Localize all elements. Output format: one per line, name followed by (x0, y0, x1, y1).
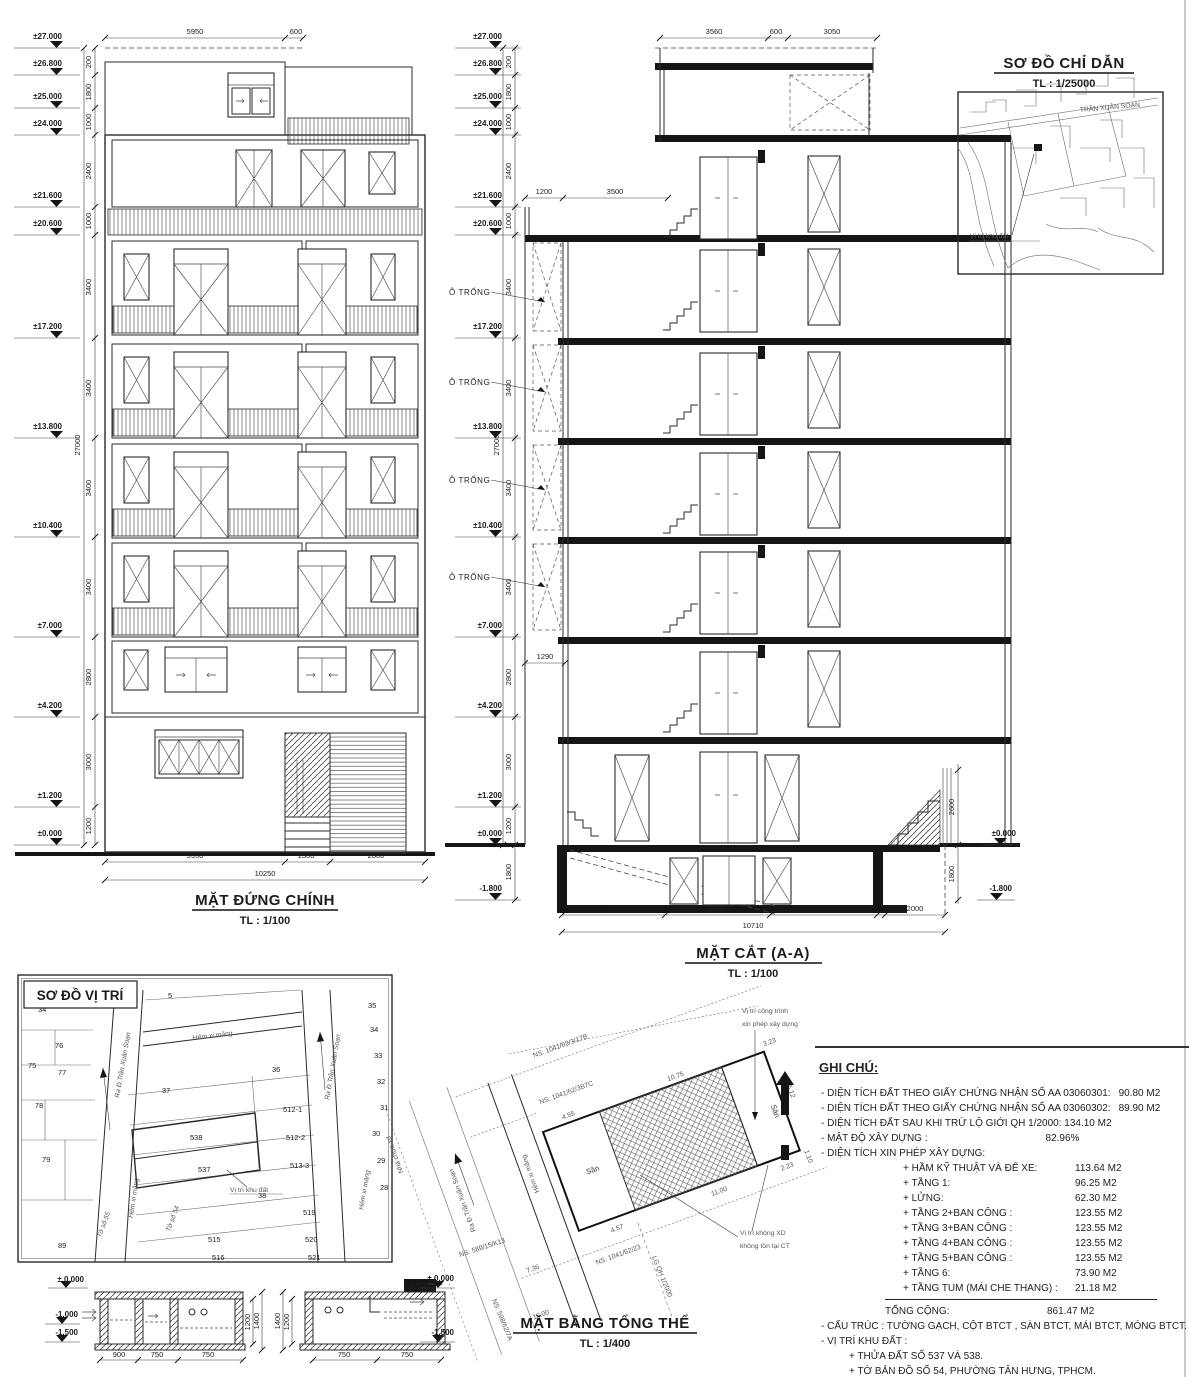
parcel-label: 37 (162, 1086, 170, 1095)
area-row: + TẦNG TUM (MÁI CHE THANG) :21.18 M2 (903, 1281, 1189, 1296)
level-label: ±1.200 (478, 791, 503, 800)
parcel-label: 516 (212, 1253, 225, 1262)
dim-label: 2600 (947, 799, 956, 816)
dim-label: 200 (504, 56, 513, 69)
callout-label: xin phép xây dựng (742, 1021, 798, 1028)
level-label: -1.800 (479, 884, 502, 893)
level-label: ±27.000 (473, 32, 502, 41)
area-value: 123.55 M2 (1075, 1236, 1122, 1251)
area-value: 113.64 M2 (1075, 1161, 1122, 1176)
lg-label: LG QH 1/2000 (650, 1255, 673, 1298)
dim-label: 3400 (84, 279, 93, 296)
area-label: + TẦNG 4+BAN CÔNG : (903, 1236, 1075, 1251)
dim-label: 1000 (504, 213, 513, 230)
dim-label: 11.00 (710, 1186, 728, 1198)
total-label: TỔNG CỘNG: (885, 1304, 1047, 1319)
street-label: Ra Đ.Trần Xuân Soạn (322, 1033, 342, 1100)
dim-label: 3.23 (762, 1037, 777, 1048)
elevation-scale: TL : 1/100 (240, 915, 291, 927)
area-label: + HẦM KỸ THUẬT VÀ ĐỂ XE: (903, 1161, 1075, 1176)
area-row: + HẦM KỸ THUẬT VÀ ĐỂ XE:113.64 M2 (903, 1161, 1189, 1176)
dim-label: 1200 (536, 187, 553, 196)
area-row: + TẦNG 4+BAN CÔNG :123.55 M2 (903, 1236, 1189, 1251)
street-label: Ra Đ.Trần Xuân Soạn (446, 1168, 477, 1234)
septic-details: ± 0.000 -1.000 -1.500 900 750 750 1200 1… (40, 1272, 460, 1377)
level-label: ±4.200 (478, 701, 503, 710)
elevation-ground-floor (105, 717, 425, 853)
parcel-label: 32 (377, 1077, 385, 1086)
area-value: 62.30 M2 (1075, 1191, 1117, 1206)
parcel-label: 36 (272, 1065, 280, 1074)
parcel-label: 513-3 (290, 1161, 309, 1170)
dim-label: 1200 (243, 1314, 252, 1331)
dim-label: 1200 (282, 1314, 291, 1331)
dim-label: 2400 (84, 163, 93, 180)
void-label: Ô TRỐNG (449, 475, 490, 485)
parcel-label: 520 (305, 1235, 318, 1244)
dim-label: 3400 (504, 380, 513, 397)
dim-label: 3400 (84, 579, 93, 596)
ns-label: NS: 1041/62/3/17B (532, 1033, 589, 1059)
parcel-label: 79 (42, 1155, 50, 1164)
parcel-label: 521 (308, 1253, 321, 1262)
dim-label: 750 (338, 1350, 351, 1359)
parcel-label: 77 (58, 1068, 66, 1077)
level-label: ±10.400 (33, 521, 62, 530)
level-label: -1.800 (989, 884, 1012, 893)
dim-label: 1000 (84, 213, 93, 230)
site-plan-title: MẶT BẰNG TỔNG THỂ (520, 1314, 689, 1332)
note-row: - CẤU TRÚC : TƯỜNG GẠCH, CỘT BTCT , SÀN … (815, 1319, 1189, 1334)
location-plan-street-labels: Ra Đ.Trần Xuân Soạn Hẻm xi măng Tờ số 55… (95, 1029, 372, 1239)
area-row: + LỬNG:62.30 M2 (903, 1191, 1189, 1206)
level-label: ±4.200 (38, 701, 63, 710)
level-label: ±13.800 (473, 422, 502, 431)
dim-label: 3500 (607, 187, 624, 196)
note-label: - MẬT ĐỘ XÂY DỰNG : (821, 1133, 928, 1144)
note-row: + TỜ BẢN ĐỒ SỐ 54, PHƯỜNG TÂN HƯNG, TPHC… (815, 1364, 1189, 1377)
total-row: TỔNG CỘNG:861.47 M2 (885, 1299, 1157, 1319)
total-width-label: 10710 (743, 921, 764, 930)
dim-label: 4.55 (561, 1110, 576, 1121)
dim-label: 1290 (537, 652, 554, 661)
index-map-site-label: Vị trí khu đất (970, 231, 1008, 240)
location-plan-roads (21, 990, 345, 1262)
dim-label: 2400 (504, 163, 513, 180)
level-label: ±20.600 (473, 219, 502, 228)
note-row: - MẬT ĐỘ XÂY DỰNG :82.96% (815, 1131, 1189, 1146)
parcel-label: 512-2 (286, 1133, 305, 1142)
dim-label: 1800 (504, 864, 513, 881)
dim-label: 3400 (504, 480, 513, 497)
dim-label: 1800 (947, 866, 956, 883)
area-value: 21.18 M2 (1075, 1281, 1117, 1296)
dim-label: 1500 (298, 851, 315, 860)
section-vertical-dims: 200 1800 1000 2400 1000 3400 3400 3400 3… (492, 45, 518, 903)
level-label: ±1.200 (38, 791, 63, 800)
note-value: 89.90 M2 (1119, 1103, 1161, 1114)
note-label: - DIỆN TÍCH ĐẤT THEO GIẤY CHỨNG NHẬN SỐ … (821, 1103, 1111, 1114)
dim-label: 2800 (84, 669, 93, 686)
area-row: + TẦNG 5+BAN CÔNG :123.55 M2 (903, 1251, 1189, 1266)
dim-label: 1.10 (802, 1149, 813, 1164)
index-map-street-label: TRẦN XUÂN SOẠN (1079, 99, 1140, 114)
elevation-drawing: ±27.000 ±26.800 ±25.000 ±24.000 ±21.600 … (0, 0, 445, 965)
note-label: - DIỆN TÍCH ĐẤT SAU KHI TRỪ LỘ GIỚI QH 1… (821, 1118, 1112, 1129)
parcel-label: 28 (380, 1183, 388, 1192)
dim-label: 1400 (273, 1313, 282, 1330)
yard-label: Sân (585, 1163, 601, 1176)
level-label: ±26.800 (33, 59, 62, 68)
ns-label: NS: 598/62/7A (490, 1298, 513, 1342)
dim-label: 2000 (907, 904, 924, 913)
dim-label: 3650 (815, 904, 832, 913)
drawing-sheet: ±27.000 ±26.800 ±25.000 ±24.000 ±21.600 … (0, 0, 1189, 1377)
section-exterior-stair (888, 768, 951, 915)
note-value: 90.80 M2 (1119, 1088, 1161, 1099)
parcel-label: 31 (380, 1103, 388, 1112)
notes-title: GHI CHÚ: (819, 1058, 1189, 1078)
level-label: ±24.000 (33, 119, 62, 128)
level-label: ±7.000 (478, 621, 503, 630)
void-label: Ô TRỐNG (449, 377, 490, 387)
alley-label: Hẻm xi măng (357, 1169, 372, 1210)
note-row: + THỬA ĐẤT SỐ 537 VÀ 538. (815, 1349, 1189, 1364)
dim-label: 750 (202, 1350, 215, 1359)
dim-label: 4.57 (610, 1223, 625, 1234)
overall-site-plan: NS: 1041/62/3/17B NS: 1041/62/3B7C NS: 1… (400, 995, 810, 1355)
dim-label: 1400 (252, 1313, 261, 1330)
dim-label: 1800 (84, 84, 93, 101)
parcel-label: 537 (198, 1165, 211, 1174)
area-value: 123.55 M2 (1075, 1251, 1122, 1266)
dim-label: 600 (770, 27, 783, 36)
section-title: MẶT CẮT (A-A) (696, 944, 810, 962)
parcel-label: 512-1 (283, 1105, 302, 1114)
total-height-label: 27000 (73, 435, 82, 456)
dim-label: 750 (151, 1350, 164, 1359)
ns-label: NS: 1041/62/3B7C (539, 1080, 595, 1106)
septic-detail-right: ± 0.000 -1.500 1400 1200 750 750 (273, 1274, 455, 1363)
parcel-label: 30 (372, 1129, 380, 1138)
callout-label: Vị trí công trình (742, 1008, 788, 1015)
notes-panel: GHI CHÚ: - DIỆN TÍCH ĐẤT THEO GIẤY CHỨNG… (815, 1046, 1189, 1377)
area-label: + LỬNG: (903, 1191, 1075, 1206)
note-row: - DIỆN TÍCH ĐẤT THEO GIẤY CHỨNG NHẬN SỐ … (815, 1101, 1189, 1116)
level-label: -1.500 (431, 1328, 454, 1337)
dim-label: 3050 (824, 27, 841, 36)
parcel-label: 5 (168, 991, 172, 1000)
index-map-title: SƠ ĐỒ CHỈ DẪN (1003, 54, 1124, 72)
elevation-mezzanine (112, 641, 418, 713)
level-label: ±27.000 (33, 32, 62, 41)
note-row: - VỊ TRÍ KHU ĐẤT : (815, 1334, 1189, 1349)
dim-label: 600 (290, 27, 303, 36)
dim-label: 1200 (84, 818, 93, 835)
ns-label: NS: 589/15/K13 (458, 1237, 506, 1259)
dim-label: 2800 (368, 851, 385, 860)
level-label: ±21.600 (473, 191, 502, 200)
area-row: + TẦNG 2+BAN CÔNG :123.55 M2 (903, 1206, 1189, 1221)
street-label: Ra Đ.Trần Xuân Soạn (112, 1031, 132, 1098)
site-plan-scale: TL : 1/400 (580, 1338, 631, 1350)
area-label: + TẦNG TUM (MÁI CHE THANG) : (903, 1281, 1075, 1296)
dim-label: 7.36 (526, 1264, 541, 1275)
area-row: + TẦNG 1:96.25 M2 (903, 1176, 1189, 1191)
area-value: 96.25 M2 (1075, 1176, 1117, 1191)
parcel-label: 538 (190, 1133, 203, 1142)
parcel-label: 76 (55, 1041, 63, 1050)
section-right-dims: 2600 1800 ±0.000 -1.800 (947, 764, 1018, 904)
level-label: ±20.600 (33, 219, 62, 228)
level-label: ±25.000 (33, 92, 62, 101)
parcel-label: 519 (303, 1208, 316, 1217)
level-label: ±10.400 (473, 521, 502, 530)
dim-label: 5950 (187, 851, 204, 860)
elevation-floor6 (112, 140, 418, 207)
area-label: + TẦNG 3+BAN CÔNG : (903, 1221, 1075, 1236)
parcel-label: 515 (208, 1235, 221, 1244)
note-row: - DIỆN TÍCH ĐẤT SAU KHI TRỪ LỘ GIỚI QH 1… (815, 1116, 1189, 1131)
area-label: + TẦNG 2+BAN CÔNG : (903, 1206, 1075, 1221)
dim-label: 1000 (504, 114, 513, 131)
location-plan-parcels: 5 34 76 75 77 78 79 89 36 37 538 537 512… (28, 991, 388, 1262)
total-width-label: 10250 (255, 869, 276, 878)
area-label: + TẦNG 1: (903, 1176, 1075, 1191)
level-label: ± 0.000 (57, 1275, 84, 1284)
note-row: - DIỆN TÍCH ĐẤT THEO GIẤY CHỨNG NHẬN SỐ … (815, 1086, 1189, 1101)
dim-label: 3560 (709, 904, 726, 913)
callout-label: không tồn tại CT (740, 1241, 790, 1250)
dim-label: 900 (113, 1350, 126, 1359)
elevation-title: MẶT ĐỨNG CHÍNH (195, 891, 335, 909)
dim-label: 2800 (504, 669, 513, 686)
dim-label: 3400 (504, 279, 513, 296)
level-label: ±13.800 (33, 422, 62, 431)
dim-label: 2.23 (780, 1162, 795, 1173)
septic-detail-left: ± 0.000 -1.000 -1.500 900 750 750 1200 1… (45, 1275, 265, 1363)
level-label: -1.000 (55, 1310, 78, 1319)
level-label: ± 0.000 (427, 1274, 454, 1283)
level-label: ±26.800 (473, 59, 502, 68)
void-label: Ô TRỐNG (449, 572, 490, 582)
yard-label: Sân (769, 1103, 782, 1119)
section-basement (557, 845, 883, 913)
level-label: ±0.000 (992, 829, 1017, 838)
note-row: - DIỆN TÍCH XIN PHÉP XÂY DỰNG: (815, 1146, 1189, 1161)
dim-label: 200 (84, 56, 93, 69)
dim-label: 750 (401, 1350, 414, 1359)
note-label: - DIỆN TÍCH XIN PHÉP XÂY DỰNG: (821, 1148, 985, 1159)
note-label: - DIỆN TÍCH ĐẤT THEO GIẤY CHỨNG NHẬN SỐ … (821, 1088, 1111, 1099)
area-row: + TẦNG 3+BAN CÔNG :123.55 M2 (903, 1221, 1189, 1236)
parcel-label: 34 (370, 1025, 378, 1034)
section-top-dims: 3560 600 3050 (657, 27, 880, 41)
dim-label: 3000 (84, 754, 93, 771)
alley-label: Hẻm xi măng (192, 1029, 233, 1042)
void-label: Ô TRỐNG (449, 287, 490, 297)
dim-label: 3500 (605, 904, 622, 913)
section-drawing: ±27.000 ±26.800 ±25.000 ±24.000 ±21.600 … (445, 0, 1020, 1000)
area-row: + TẦNG 6:73.90 M2 (903, 1266, 1189, 1281)
area-label: + TẦNG 6: (903, 1266, 1075, 1281)
location-plan-title: SƠ ĐỒ VỊ TRÍ (37, 988, 125, 1003)
dim-label: 3000 (504, 754, 513, 771)
parcel-label: 29 (377, 1156, 385, 1165)
parcel-label: 78 (35, 1101, 43, 1110)
level-label: -1.500 (55, 1328, 78, 1337)
level-label: ±24.000 (473, 119, 502, 128)
total-height-label: 27000 (492, 435, 501, 456)
dim-label: 1200 (504, 818, 513, 835)
dim-label: 3400 (84, 380, 93, 397)
elevation-top-dims: 5950 600 (102, 27, 306, 41)
level-label: ±0.000 (38, 829, 63, 838)
alley-label: Hẻm xi măng (521, 1153, 541, 1193)
index-map: SƠ ĐỒ CHỈ DẪN TL : 1/25000 TRẦN XUÂN SOẠ… (950, 28, 1189, 288)
sheet-label: Tờ số 54 (164, 1205, 181, 1233)
location-plan: Ra Đ.Trần Xuân Soạn Hẻm xi măng Tờ số 55… (15, 970, 400, 1270)
section-building (445, 48, 1020, 915)
dim-label: 1800 (504, 84, 513, 101)
elevation-level-markers: ±27.000 ±26.800 ±25.000 ±24.000 ±21.600 … (14, 32, 80, 845)
site-label: Vị trí khu đất (230, 1185, 268, 1194)
callout-label: Vị trí không XD (740, 1230, 786, 1237)
level-label: ±17.200 (33, 322, 62, 331)
dim-label: 3560 (706, 27, 723, 36)
section-scale: TL : 1/100 (728, 968, 779, 980)
dim-label: 3400 (84, 480, 93, 497)
area-label: + TẦNG 5+BAN CÔNG : (903, 1251, 1075, 1266)
note-value: 82.96% (1046, 1133, 1080, 1144)
parcel-label: 89 (58, 1241, 66, 1250)
level-label: ±7.000 (38, 621, 63, 630)
total-value: 861.47 M2 (1047, 1304, 1094, 1319)
dim-label: 3400 (504, 579, 513, 596)
dim-label: 5950 (187, 27, 204, 36)
level-label: ±17.200 (473, 322, 502, 331)
level-label: ±25.000 (473, 92, 502, 101)
parcel-label: 35 (368, 1001, 376, 1010)
area-value: 123.55 M2 (1075, 1221, 1122, 1236)
parcel-label: 75 (28, 1061, 36, 1070)
dim-label: 1000 (84, 114, 93, 131)
elevation-vertical-dims: 200 1800 1000 2400 1000 3400 3400 3400 3… (73, 45, 98, 848)
level-label: ±0.000 (478, 829, 503, 838)
ns-label: NS: 1041/62/23 (595, 1244, 642, 1267)
level-label: ±21.600 (33, 191, 62, 200)
area-value: 123.55 M2 (1075, 1206, 1122, 1221)
parcel-label: 33 (374, 1051, 382, 1060)
area-value: 73.90 M2 (1075, 1266, 1117, 1281)
